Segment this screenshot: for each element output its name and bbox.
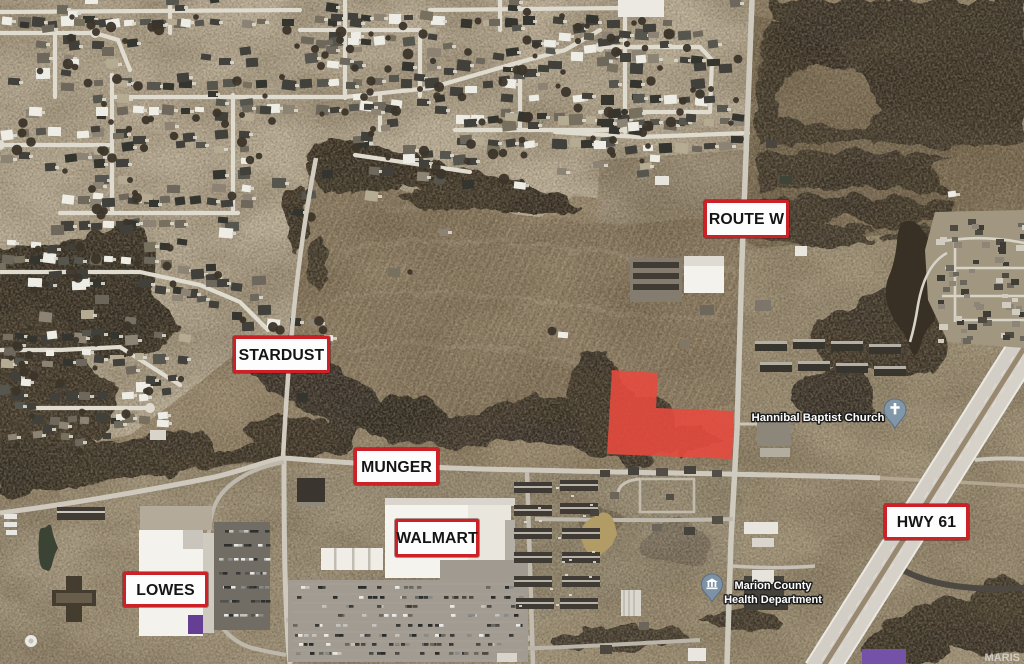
svg-text:MARIS: MARIS bbox=[985, 652, 1020, 664]
svg-text:Hannibal Baptist Church: Hannibal Baptist Church bbox=[752, 412, 885, 424]
svg-text:Health Department: Health Department bbox=[724, 594, 822, 606]
svg-text:Marion County: Marion County bbox=[735, 580, 813, 592]
